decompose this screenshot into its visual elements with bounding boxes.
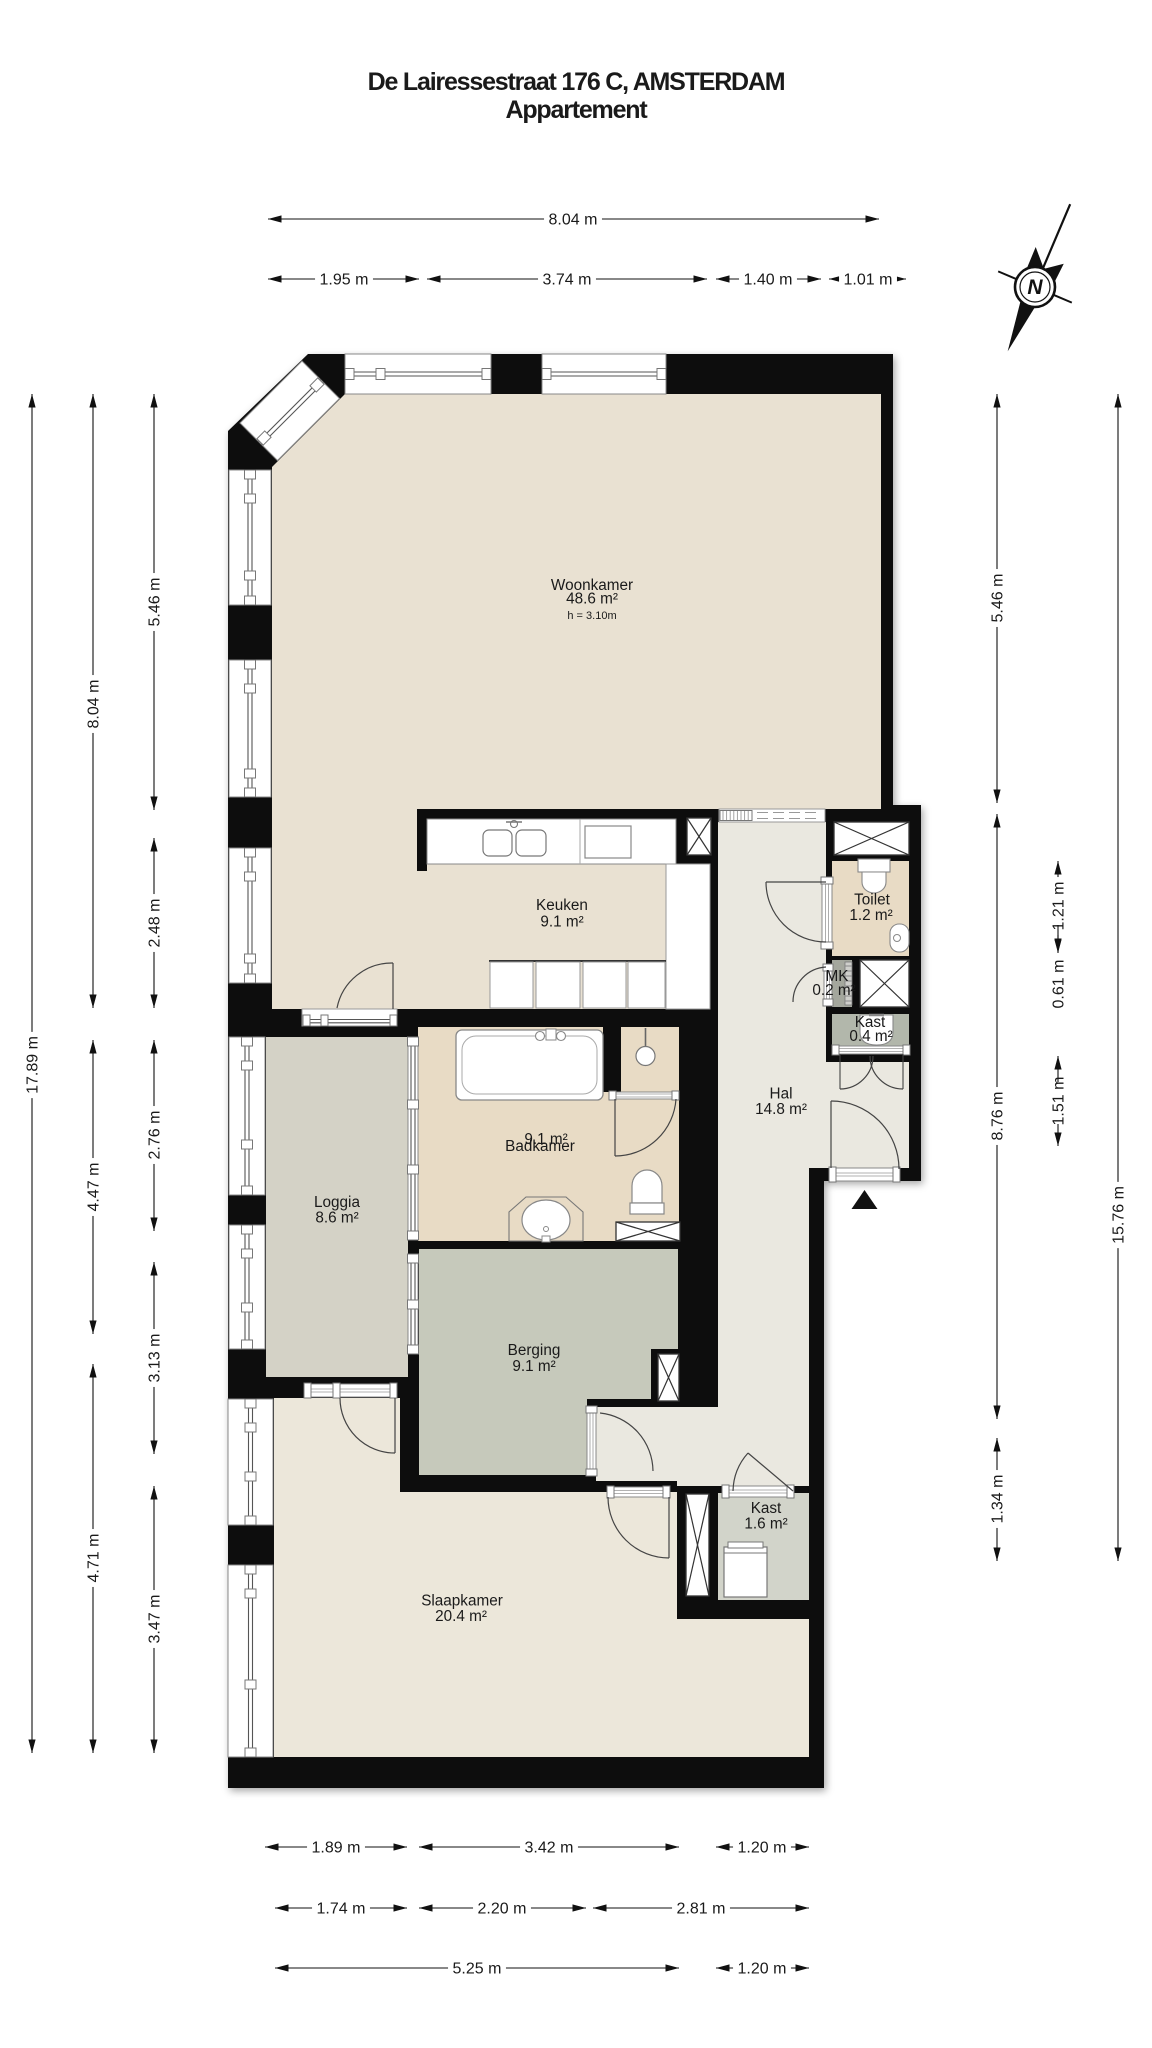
svg-text:1.20 m: 1.20 m — [738, 1961, 787, 1978]
svg-text:Hal: Hal — [770, 1086, 793, 1103]
svg-text:0.4 m²: 0.4 m² — [849, 1028, 892, 1045]
svg-text:1.51 m: 1.51 m — [1051, 1077, 1068, 1126]
svg-text:4.71 m: 4.71 m — [86, 1534, 103, 1583]
svg-text:1.21 m: 1.21 m — [1051, 882, 1068, 931]
svg-text:4.47 m: 4.47 m — [86, 1163, 103, 1212]
svg-text:0.61 m: 0.61 m — [1051, 960, 1068, 1009]
svg-text:h = 3.10m: h = 3.10m — [567, 610, 616, 622]
svg-text:20.4 m²: 20.4 m² — [435, 1608, 487, 1625]
svg-text:Appartement: Appartement — [506, 96, 649, 124]
svg-text:8.76 m: 8.76 m — [990, 1092, 1007, 1141]
svg-text:1.89 m: 1.89 m — [312, 1840, 361, 1857]
svg-text:Loggia: Loggia — [314, 1194, 360, 1211]
svg-text:Badkamer: Badkamer — [505, 1138, 575, 1155]
svg-text:5.46 m: 5.46 m — [147, 578, 164, 627]
svg-text:1.34 m: 1.34 m — [990, 1475, 1007, 1524]
svg-text:8.04 m: 8.04 m — [86, 680, 103, 729]
svg-text:15.76 m: 15.76 m — [1111, 1186, 1128, 1244]
svg-text:N: N — [1027, 276, 1043, 299]
svg-text:1.74 m: 1.74 m — [317, 1901, 366, 1918]
svg-text:9.1 m²: 9.1 m² — [512, 1358, 555, 1375]
svg-text:Berging: Berging — [508, 1342, 561, 1359]
svg-text:5.46 m: 5.46 m — [990, 574, 1007, 623]
svg-text:0.2 m²: 0.2 m² — [812, 982, 855, 999]
svg-text:De Lairessestraat 176 C, AMSTE: De Lairessestraat 176 C, AMSTERDAM — [368, 68, 785, 96]
svg-text:8.04 m: 8.04 m — [549, 212, 598, 229]
svg-text:Toilet: Toilet — [854, 892, 890, 909]
svg-text:Kast: Kast — [751, 1500, 782, 1517]
svg-text:1.01 m: 1.01 m — [844, 272, 893, 289]
svg-text:3.13 m: 3.13 m — [147, 1334, 164, 1383]
svg-text:14.8 m²: 14.8 m² — [755, 1101, 807, 1118]
svg-text:1.2 m²: 1.2 m² — [849, 907, 892, 924]
svg-text:Slaapkamer: Slaapkamer — [421, 1593, 503, 1610]
svg-text:3.74 m: 3.74 m — [543, 272, 592, 289]
svg-text:2.76 m: 2.76 m — [147, 1111, 164, 1160]
svg-text:1.40 m: 1.40 m — [744, 272, 793, 289]
svg-text:2.81 m: 2.81 m — [677, 1901, 726, 1918]
svg-text:3.47 m: 3.47 m — [147, 1595, 164, 1644]
svg-text:17.89 m: 17.89 m — [25, 1036, 42, 1094]
svg-text:1.6 m²: 1.6 m² — [744, 1516, 787, 1533]
svg-text:Keuken: Keuken — [536, 897, 588, 914]
svg-text:1.20 m: 1.20 m — [738, 1840, 787, 1857]
svg-text:2.20 m: 2.20 m — [478, 1901, 527, 1918]
svg-text:1.95 m: 1.95 m — [320, 272, 369, 289]
svg-text:3.42 m: 3.42 m — [525, 1840, 574, 1857]
svg-text:8.6 m²: 8.6 m² — [315, 1210, 358, 1227]
svg-text:48.6 m²: 48.6 m² — [566, 591, 618, 608]
svg-text:2.48 m: 2.48 m — [147, 899, 164, 948]
svg-text:9.1 m²: 9.1 m² — [540, 914, 583, 931]
svg-text:5.25 m: 5.25 m — [453, 1961, 502, 1978]
